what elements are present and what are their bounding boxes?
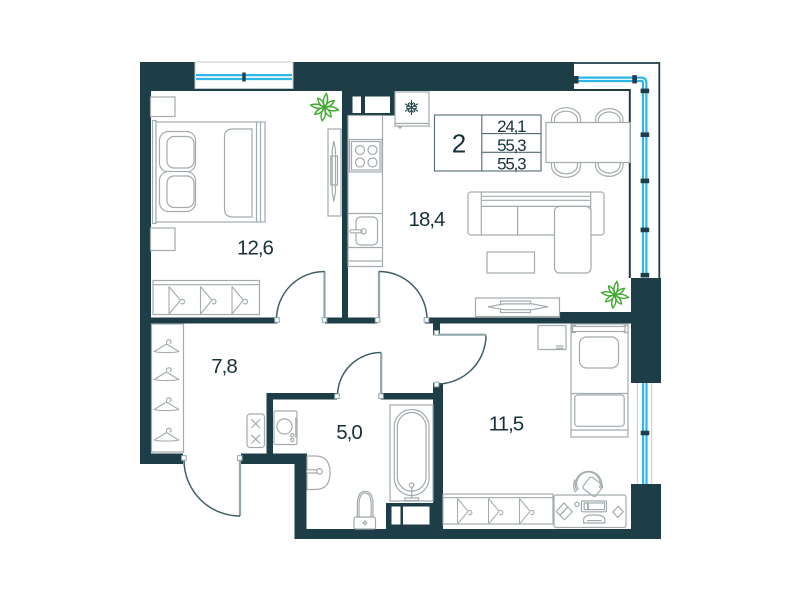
svg-text:55,3: 55,3 <box>497 155 526 174</box>
svg-text:24,1: 24,1 <box>497 117 526 136</box>
svg-text:55,3: 55,3 <box>497 136 526 155</box>
svg-text:11,5: 11,5 <box>489 413 524 436</box>
svg-text:12,6: 12,6 <box>237 236 273 259</box>
svg-text:7,8: 7,8 <box>211 355 237 378</box>
svg-text:5,0: 5,0 <box>336 421 362 444</box>
svg-text:2: 2 <box>452 129 466 159</box>
svg-text:18,4: 18,4 <box>409 208 445 231</box>
